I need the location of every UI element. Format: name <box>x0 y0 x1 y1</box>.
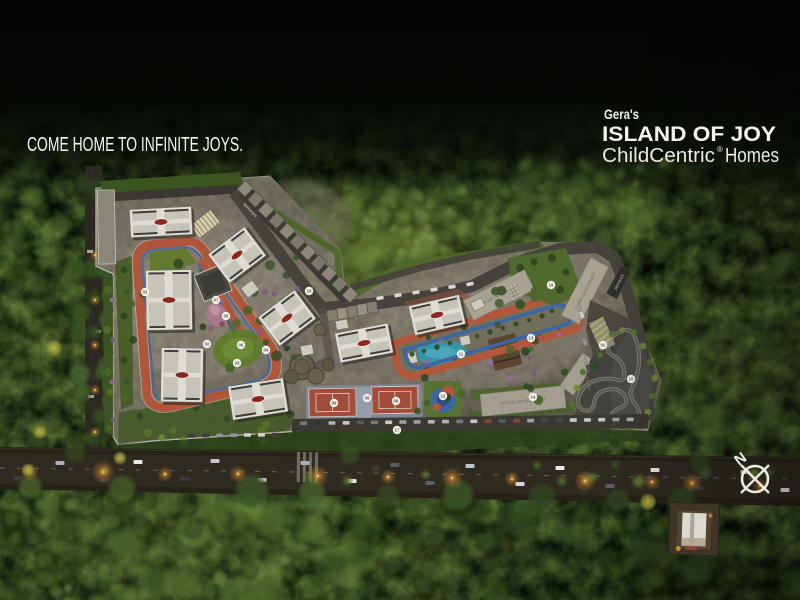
svg-text:Gera's: Gera's <box>604 106 639 122</box>
svg-text:®: ® <box>717 145 723 154</box>
svg-text:COME HOME TO INFINITE JOYS.: COME HOME TO INFINITE JOYS. <box>27 134 243 156</box>
svg-text:ISLAND OF JOY: ISLAND OF JOY <box>602 122 776 146</box>
svg-text:Homes: Homes <box>725 145 779 167</box>
svg-text:ChildCentric: ChildCentric <box>602 145 715 167</box>
